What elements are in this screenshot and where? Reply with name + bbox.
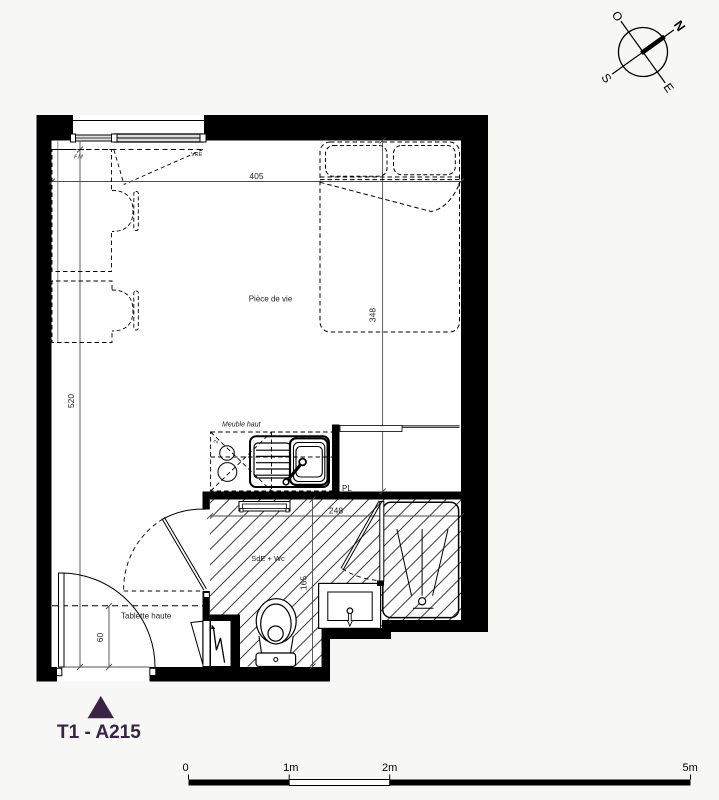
svg-text:0: 0 (183, 762, 189, 774)
svg-text:5m: 5m (683, 762, 698, 774)
svg-text:Pièce de vie: Pièce de vie (249, 295, 293, 304)
svg-text:N: N (671, 18, 689, 34)
svg-text:T1 - A215: T1 - A215 (57, 722, 141, 743)
svg-text:O: O (609, 8, 626, 24)
svg-text:348: 348 (368, 308, 378, 322)
svg-text:S: S (598, 71, 614, 86)
svg-text:Meuble haut: Meuble haut (222, 422, 262, 429)
svg-text:Tablette haute: Tablette haute (121, 612, 172, 621)
svg-text:248: 248 (329, 506, 343, 516)
svg-text:SdE + Wc: SdE + Wc (251, 554, 285, 563)
svg-text:2m: 2m (382, 762, 397, 774)
svg-text:VRE: VRE (191, 152, 203, 158)
svg-text:405: 405 (249, 171, 263, 181)
svg-text:1m: 1m (283, 762, 298, 774)
svg-text:520: 520 (66, 394, 76, 408)
svg-text:PL: PL (342, 484, 352, 493)
svg-text:165: 165 (299, 576, 309, 590)
svg-text:F.M: F.M (74, 155, 83, 161)
svg-text:60: 60 (95, 633, 105, 643)
svg-text:E: E (661, 80, 677, 95)
